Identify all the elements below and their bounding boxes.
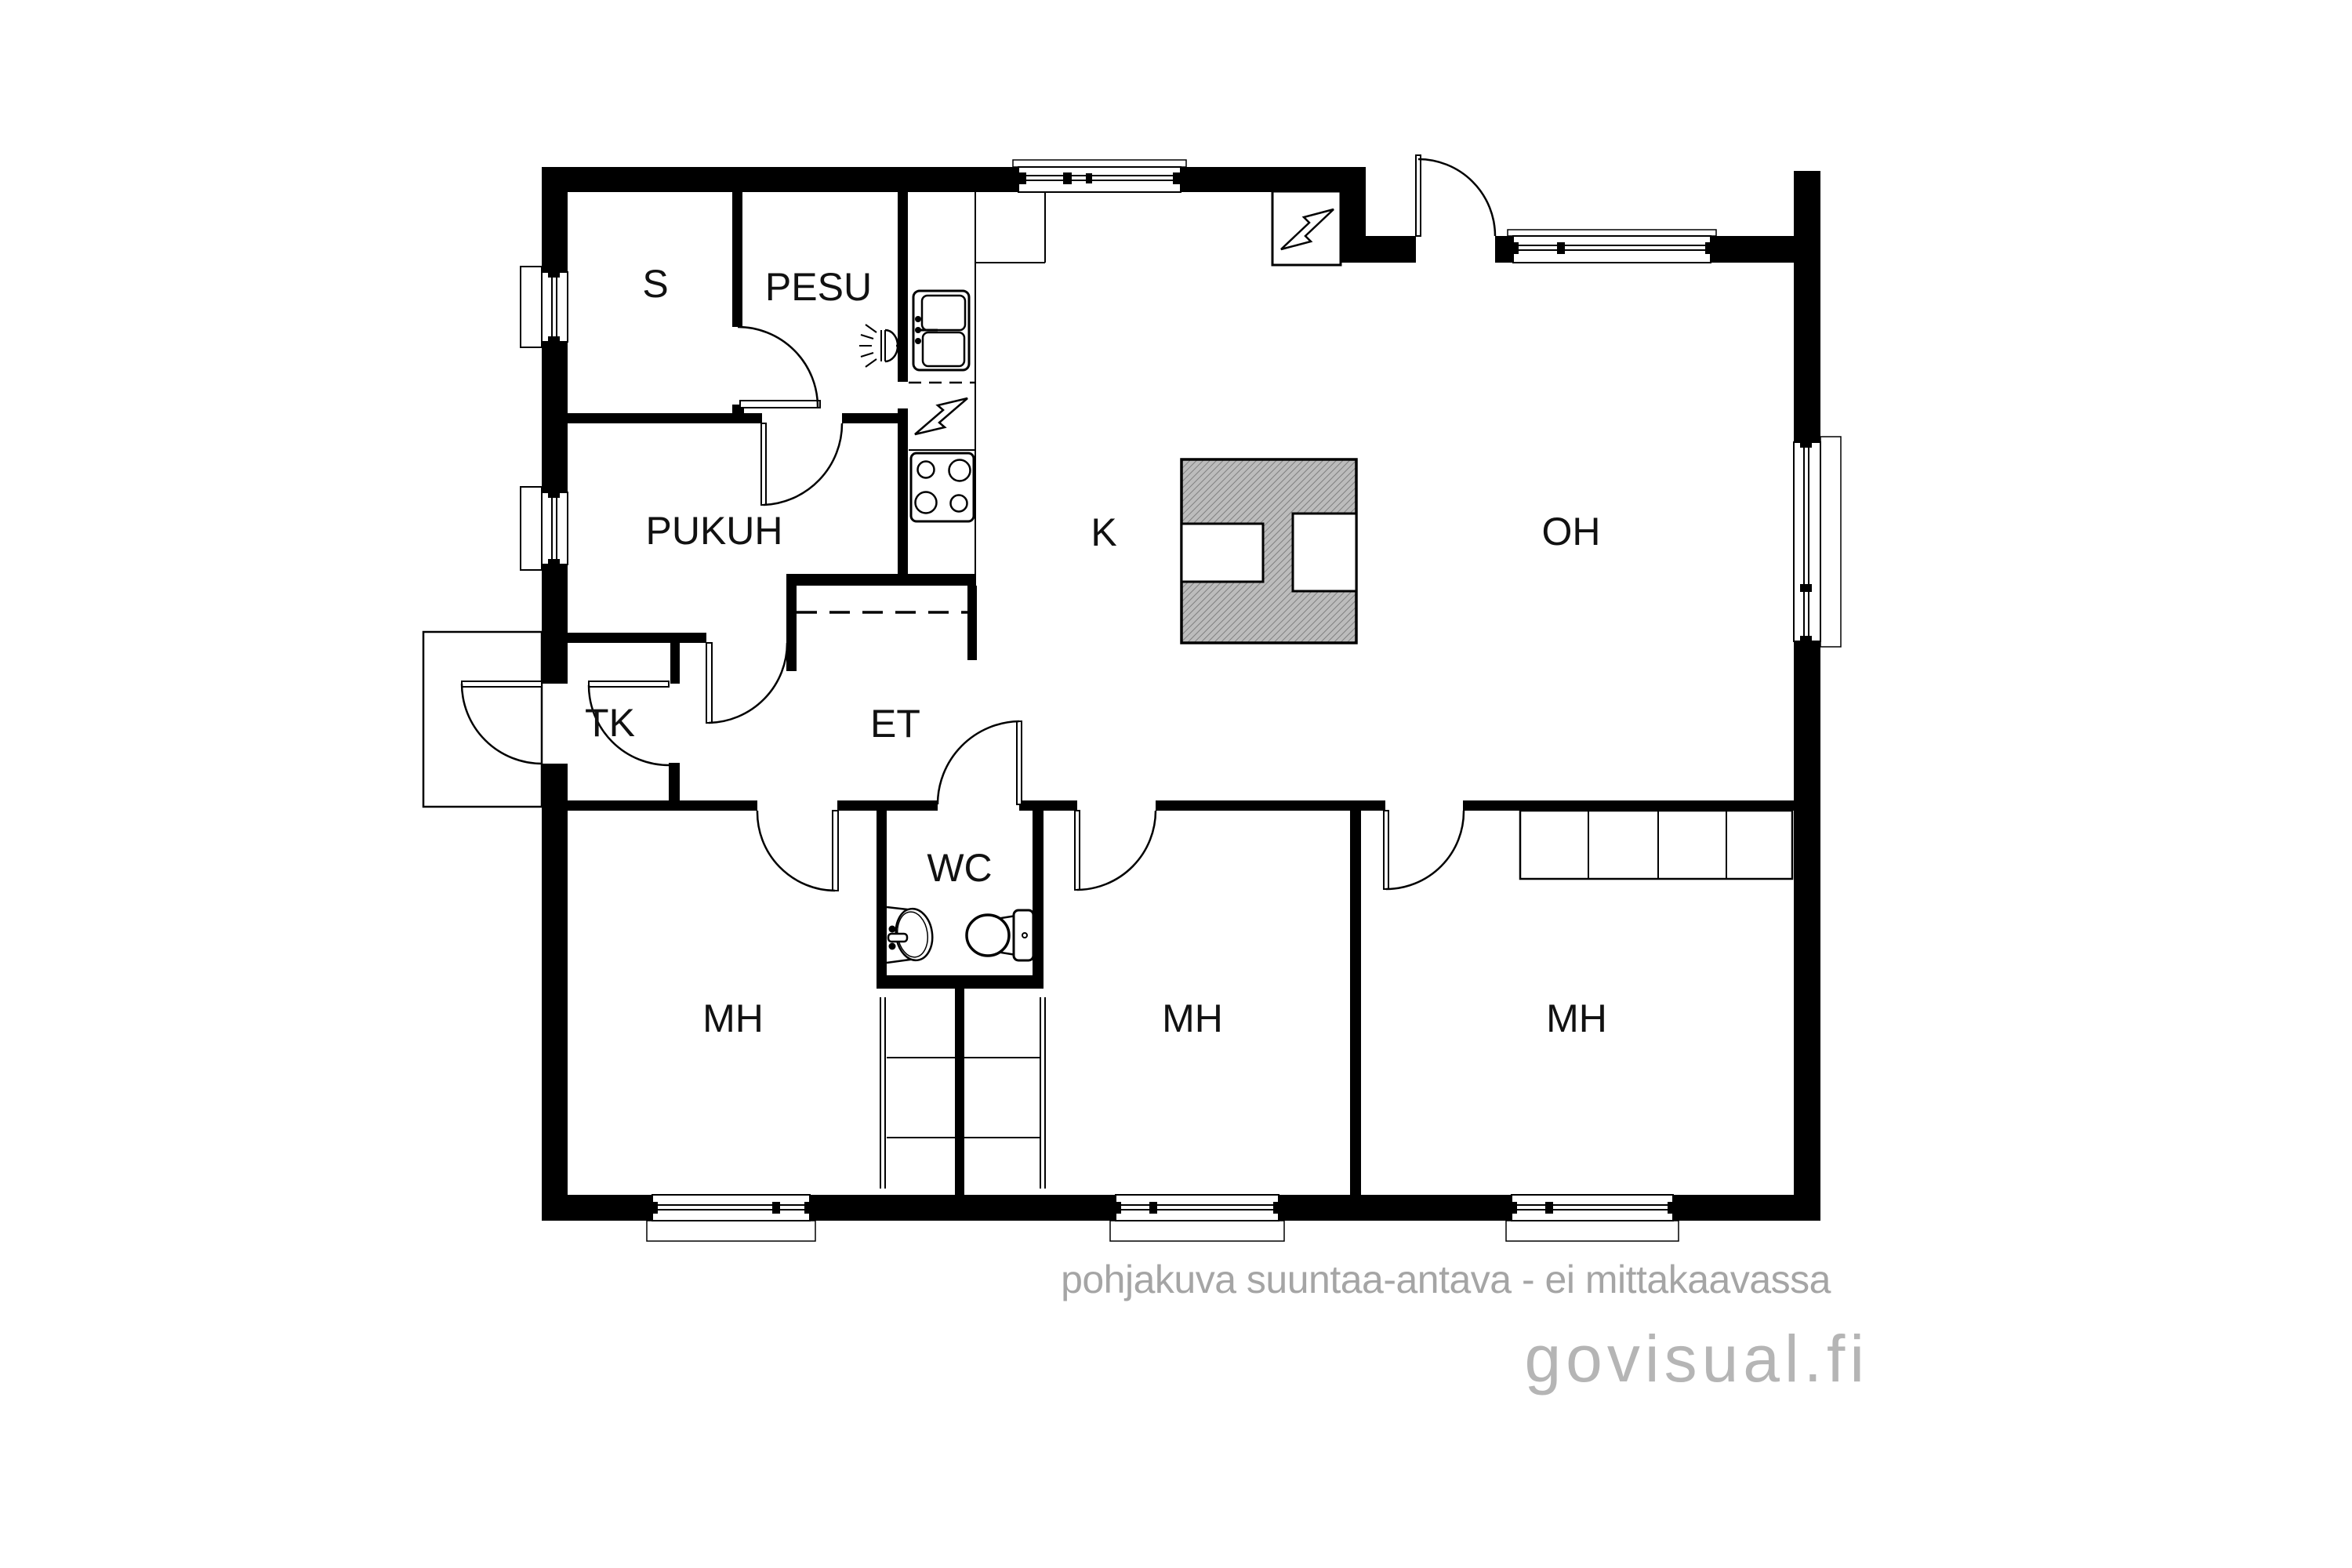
svg-text:MH: MH	[702, 996, 764, 1040]
svg-text:MH: MH	[1546, 996, 1607, 1040]
svg-text:TK: TK	[585, 701, 635, 745]
svg-text:K: K	[1091, 510, 1116, 554]
svg-text:S: S	[642, 262, 668, 306]
svg-text:PESU: PESU	[765, 265, 872, 309]
svg-text:ET: ET	[870, 702, 920, 746]
svg-text:OH: OH	[1542, 510, 1601, 554]
svg-text:PUKUH: PUKUH	[645, 509, 782, 553]
svg-text:govisual.fi: govisual.fi	[1524, 1322, 1869, 1396]
svg-text:WC: WC	[927, 846, 992, 890]
svg-text:MH: MH	[1162, 996, 1223, 1040]
svg-text:pohjakuva suuntaa-antava - ei: pohjakuva suuntaa-antava - ei mittakaava…	[1061, 1258, 1831, 1301]
